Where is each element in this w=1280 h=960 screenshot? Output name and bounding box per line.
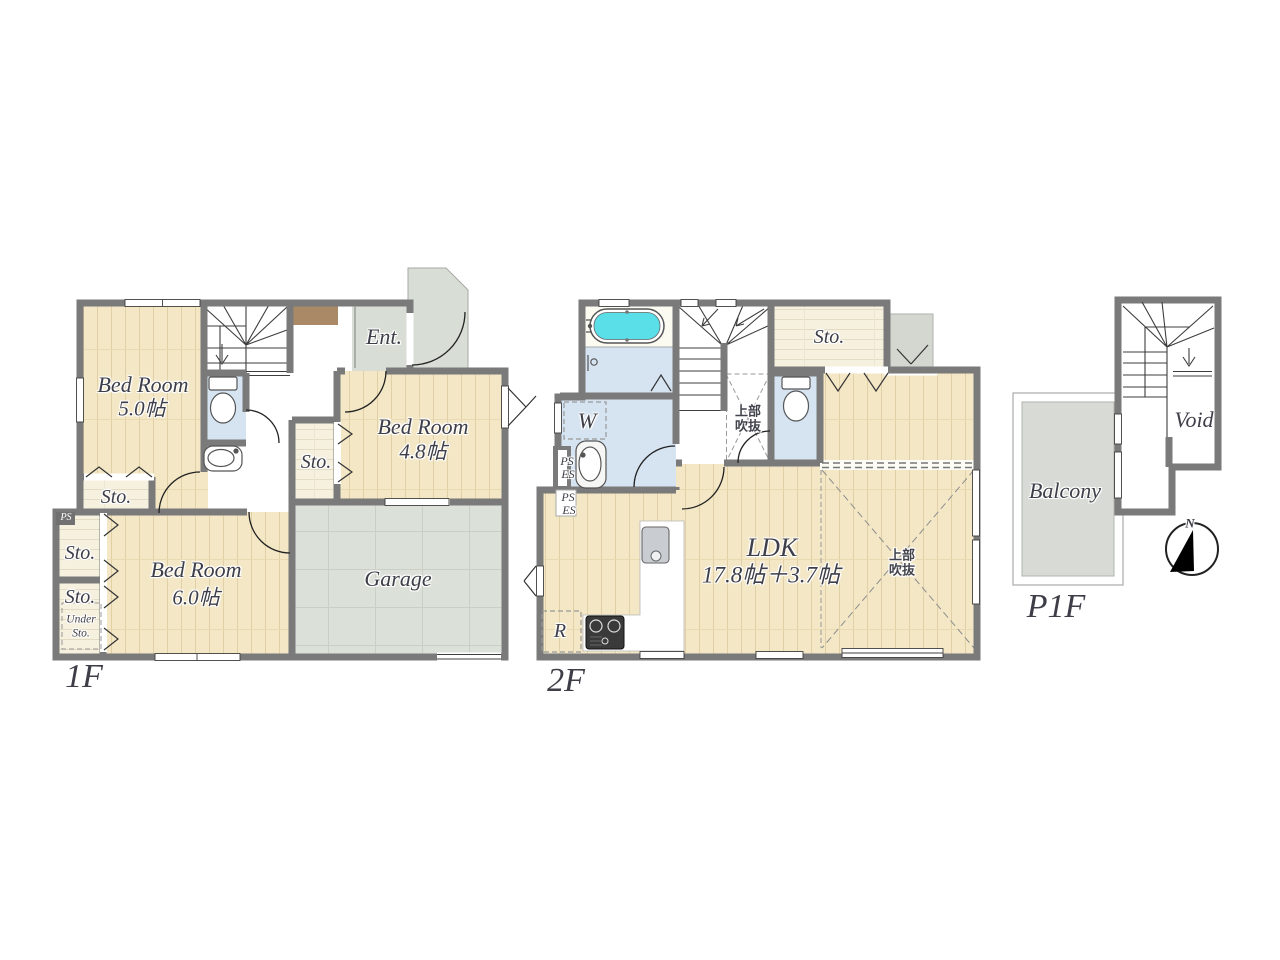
ps-label-1: PS [560,455,573,467]
floor-label-1f: 1F [65,660,103,694]
room-bedroom6-floor [103,512,292,657]
ldk-size-label: 17.8帖＋3.7帖 [702,564,840,587]
bedroom48-size-label: 4.8帖 [399,442,446,463]
bathtub-symbol [586,309,664,343]
floor-plan-p1f [1013,300,1218,585]
bedroom48-name-label: Bed Room [377,416,468,438]
washbasin-symbol-2f [576,441,606,488]
storage-c-label: Sto. [65,587,96,607]
toilet-symbol-2f [782,377,810,421]
bedroom5-size-label: 5.0帖 [118,399,165,420]
storage-a-label: Sto. [101,487,132,507]
void-above-main-line2: 吹抜 [889,564,915,577]
kitchen-sink-symbol [642,527,669,563]
floor-plan-2f [524,300,980,659]
es-label-1: ES [561,468,574,480]
bedroom6-name-label: Bed Room [150,559,241,581]
ps-label-2: PS [561,491,574,503]
entrance-porch [408,268,468,368]
compass-north-label: N [1185,517,1194,530]
under-storage-line1: Under [66,614,95,626]
floorplan-page: Bed Room 5.0帖 Sto. PS Sto. Sto. Under St… [0,0,1280,960]
garage-label: Garage [364,568,431,590]
balcony-label: Balcony [1029,480,1101,502]
toilet-symbol-1f [209,377,237,423]
void-above-stairs-line2: 吹抜 [735,420,761,433]
floor-label-p1f: P1F [1027,590,1086,624]
ps-badge-1f: PS [58,513,73,523]
bedroom5-name-label: Bed Room [97,374,188,396]
void-above-stairs-line1: 上部 [735,405,761,418]
washbasin-symbol-1f [204,446,242,471]
floor-label-2f: 2F [547,664,585,698]
balcony-access-porch [889,314,933,371]
void-label: Void [1174,409,1213,431]
bedroom6-size-label: 6.0帖 [172,588,219,609]
compass-rose [1166,523,1218,575]
garage-door-opening [437,653,501,662]
storage-2f-label: Sto. [814,327,845,347]
under-storage-line2: Sto. [72,628,90,640]
storage-b-label: Sto. [65,543,96,563]
void-above-main-line1: 上部 [889,549,915,562]
stove-symbol [586,616,624,649]
refrigerator-label: R [554,621,566,641]
windows-p1f [1115,414,1122,498]
washroom-label: W [578,410,596,432]
entrance-label: Ent. [366,326,402,348]
es-label-2: ES [562,504,575,516]
entrance-mat [292,305,338,325]
ldk-name-label: LDK [747,535,798,561]
storage-d-label: Sto. [301,452,332,472]
floor-plan-1f [56,268,536,662]
